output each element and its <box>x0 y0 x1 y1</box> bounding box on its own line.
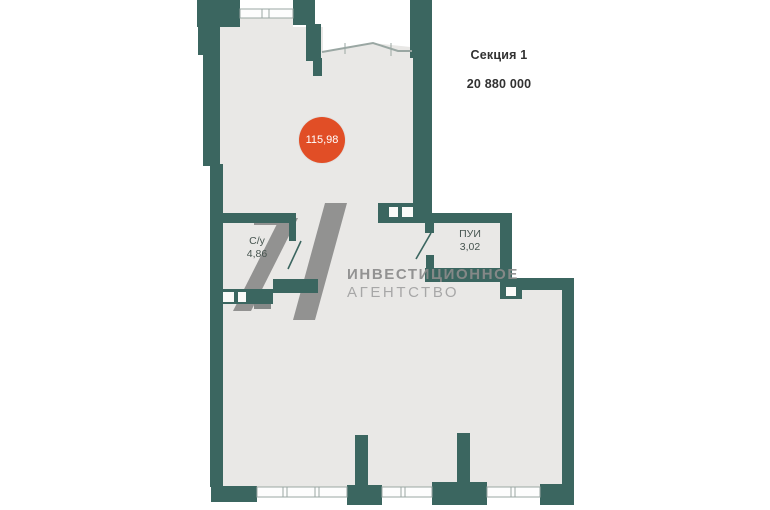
room-pui-area: 3,02 <box>440 241 500 254</box>
room-label-su: С/у 4,86 <box>227 235 287 261</box>
total-area-badge: 115,98 <box>299 117 345 163</box>
room-label-pui: ПУИ 3,02 <box>440 228 500 254</box>
total-area-value: 115,98 <box>306 134 339 146</box>
window-bottom-middle <box>382 487 432 497</box>
window-bottom-left <box>257 487 347 497</box>
room-su-area: 4,86 <box>227 248 287 261</box>
price-label: 20 880 000 <box>444 77 554 91</box>
floor-plan <box>0 0 770 510</box>
room-su-name: С/у <box>227 235 287 248</box>
room-pui-name: ПУИ <box>440 228 500 241</box>
section-label: Секция 1 <box>449 48 549 62</box>
watermark-agency-line1: ИНВЕСТИЦИОННОЕ <box>347 266 519 283</box>
watermark-agency-line2: АГЕНТСТВО <box>347 284 459 301</box>
floor-plan-screenshot: 115,98 Секция 1 20 880 000 С/у 4,86 ПУИ … <box>0 0 770 510</box>
